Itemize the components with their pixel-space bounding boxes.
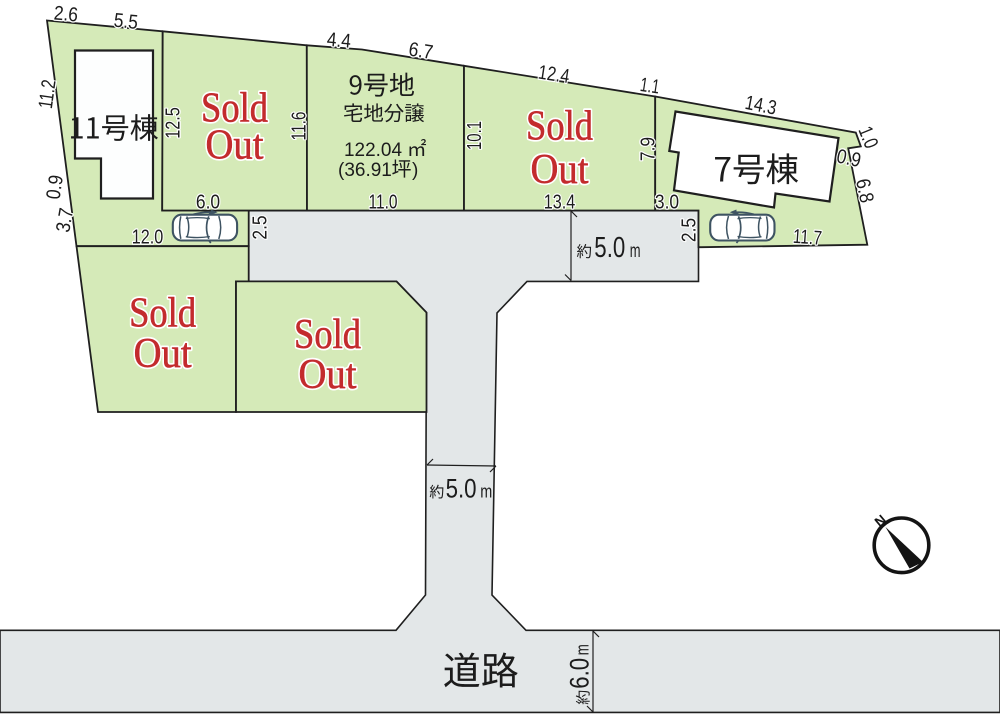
svg-text:2.6: 2.6 <box>53 2 79 26</box>
svg-text:Sold: Sold <box>129 290 196 336</box>
svg-text:1.1: 1.1 <box>639 74 661 99</box>
svg-text:122.04: 122.04 <box>344 140 402 161</box>
svg-text:12.5: 12.5 <box>162 107 184 139</box>
svg-text:6.0: 6.0 <box>196 191 220 213</box>
svg-text:5.0: 5.0 <box>594 232 625 264</box>
svg-text:0.9: 0.9 <box>43 174 68 201</box>
svg-text:2.5: 2.5 <box>678 218 700 242</box>
svg-text:5.5: 5.5 <box>113 10 139 34</box>
svg-text:m: m <box>573 644 593 655</box>
svg-text:5.0: 5.0 <box>446 473 477 503</box>
svg-text:Out: Out <box>531 147 589 193</box>
svg-text:4.4: 4.4 <box>326 29 352 53</box>
svg-text:Out: Out <box>134 331 192 377</box>
svg-text:11.6: 11.6 <box>288 112 310 141</box>
svg-text:Sold: Sold <box>526 104 593 150</box>
svg-text:6.7: 6.7 <box>407 39 434 65</box>
svg-text:6.0: 6.0 <box>565 658 595 689</box>
svg-text:11.0: 11.0 <box>369 191 398 213</box>
svg-text:11.2: 11.2 <box>35 78 61 110</box>
svg-text:12.0: 12.0 <box>132 226 164 248</box>
svg-text:Out: Out <box>206 123 264 169</box>
svg-text:m: m <box>630 241 641 262</box>
svg-text:11.7: 11.7 <box>792 226 822 250</box>
svg-text:3.0: 3.0 <box>655 191 679 213</box>
svg-text:7.9: 7.9 <box>637 137 659 161</box>
svg-text:3.7: 3.7 <box>52 206 78 234</box>
svg-text:m: m <box>480 481 492 501</box>
svg-text:12.4: 12.4 <box>537 62 571 88</box>
svg-text:(36.91: (36.91 <box>338 160 392 181</box>
svg-text:2.5: 2.5 <box>249 215 271 239</box>
svg-text:10.1: 10.1 <box>464 121 486 150</box>
svg-text:13.4: 13.4 <box>544 191 576 213</box>
svg-text:): ) <box>412 160 418 181</box>
svg-text:Out: Out <box>299 352 357 398</box>
